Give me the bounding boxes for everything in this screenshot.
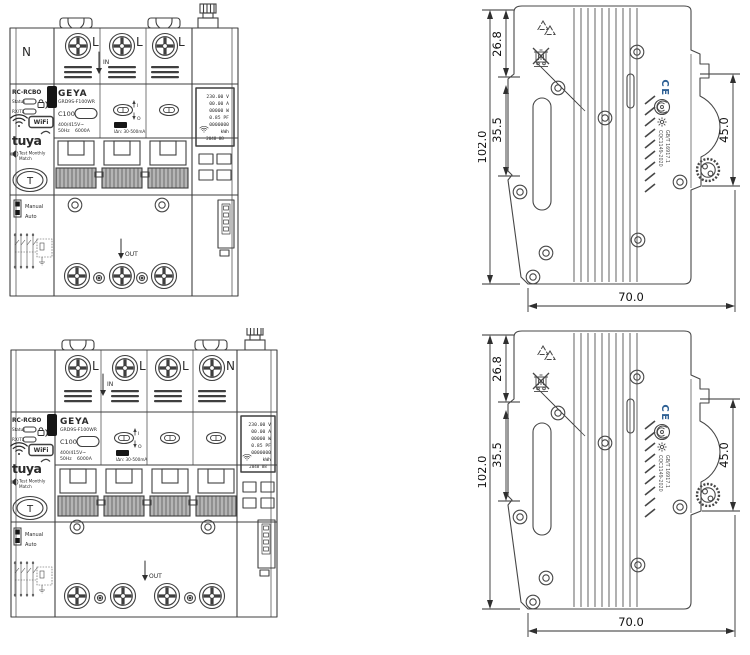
on-mark: I [137,103,138,109]
dim-height-label: 102.0 [478,131,489,164]
breaking-capacity: 6000A [75,128,91,134]
pole-toggle [114,105,133,116]
status-led-label: Status [12,99,25,104]
residual-current-rating: IΔn: 30-500mA [116,457,147,462]
cert-number: CQC1149-2020 [657,455,663,492]
svg-text:IN: IN [103,59,109,66]
lcd-power: 00000 W [209,108,229,114]
dim-height-label: 102.0 [478,456,489,489]
antenna-connector [245,328,265,350]
test-label-line1: Test Monthly [18,479,46,484]
cert-number: CQC1149-2020 [657,130,663,167]
rating-label: C100 [60,438,77,446]
svg-text:OUT: OUT [125,251,138,258]
lcd-energy-unit: kWh [221,129,230,135]
residual-current-rating: IΔn: 30-500mA [114,129,145,134]
lcd-power: 00000 W [251,436,271,442]
svg-text:OUT: OUT [149,573,162,580]
tuya-logo: tuya [12,133,42,148]
model-number: GRD9S-F100WR [58,99,96,105]
svg-text:IN: IN [107,381,113,388]
dim-upper-label: 26.8 [490,31,504,57]
lcd-energy-unit: kWh [263,457,272,463]
status-led-label: Status [12,427,25,432]
terminal-label: N [22,45,31,59]
vent-slots [64,66,179,78]
ce-mark: CE [659,404,670,421]
dim-lower-label: 35.5 [490,117,504,143]
terminal-label: L [136,35,143,49]
brand-logo: GEYA [60,417,89,427]
lcd-power-factor: 0.85 PF [251,443,271,449]
test-label-line2: Match [19,484,32,489]
dim-upper-label: 26.8 [490,356,504,382]
side-view-top: 102.0 26.8 35.5 45.0 70.0 CE CQC1149-202… [478,0,750,330]
on-mark: I [138,431,139,437]
voltage-rating: 400/415V~ [60,450,86,456]
off-mark: O [137,116,141,122]
lcd-energy: 0000000 [209,122,229,128]
lcd-voltage: 230.00 V [248,422,271,428]
test-label-line2: Match [19,156,32,161]
mounting-tab [62,340,94,351]
dim-right-label: 45.0 [717,442,731,468]
frequency-rating: 50Hz [58,128,70,134]
test-label-line1: Test Monthly [18,151,46,156]
cert-standard: GB/T 16917.1 [664,130,670,163]
front-view-4pole: L L L N IN RC-RCBO Status RX/TX WiFi tuy… [8,328,284,628]
panel-title: RC-RCBO [12,418,41,424]
breaking-capacity: 6000A [77,456,93,462]
lcd-status-row: 2048 88 [249,464,267,469]
terminal-label: L [92,359,99,373]
manual-label: Manual [25,204,43,210]
cert-standard: GB/T 16917.1 [664,455,670,488]
side-view-bottom: 102.0 26.8 35.5 45.0 70.0 CE CQC1149-202… [478,325,750,655]
lcd-power-factor: 0.85 PF [209,115,229,121]
lcd-current: 00.00 A [251,429,271,435]
mounting-tab [195,340,227,351]
wifi-badge: WiFi [34,447,49,454]
terminal-label: L [92,35,99,49]
off-mark: O [138,444,142,450]
dim-depth-label: 70.0 [618,290,644,304]
rxtx-led-label: RX/TX [12,437,25,442]
terminal-label: L [182,359,189,373]
dim-right-label: 45.0 [717,117,731,143]
test-button: T [26,504,34,515]
front-view-3pole: N L L L IN RC-RCBO Status RX/TX WiFi tuy… [8,2,240,302]
breaker-side-profile [482,6,740,312]
lcd-current: 00.00 A [209,101,229,107]
mounting-tab [148,18,180,29]
terminal-label: L [178,35,185,49]
manual-label: Manual [25,532,43,538]
voltage-rating: 400/415V~ [58,122,84,128]
pole-toggle [161,433,180,444]
breaker-side-profile [482,331,740,637]
mounting-tab [60,18,92,29]
rating-label: C100 [58,110,75,118]
frequency-rating: 50Hz [60,456,72,462]
model-number: GRD9S-F100WR [60,427,98,433]
test-button: T [26,176,34,187]
dim-depth-label: 70.0 [618,615,644,629]
pole-toggle [115,433,134,444]
dim-lower-label: 35.5 [490,442,504,468]
lcd-energy: 0000000 [251,450,271,456]
pole-toggle [207,433,226,444]
wifi-badge: WiFi [34,119,49,126]
ce-mark: CE [659,79,670,96]
lcd-voltage: 230.00 V [206,94,229,100]
antenna-connector [198,4,218,28]
terminal-label: L [139,359,146,373]
terminal-label: N [226,359,235,373]
auto-label: Auto [25,214,37,220]
panel-title: RC-RCBO [12,90,41,96]
pole-toggle [160,105,179,116]
rxtx-led-label: RX/TX [12,109,25,114]
brand-logo: GEYA [58,89,87,99]
tuya-logo: tuya [12,461,42,476]
lcd-status-row: 2048 88 [206,136,224,141]
auto-label: Auto [25,542,37,548]
